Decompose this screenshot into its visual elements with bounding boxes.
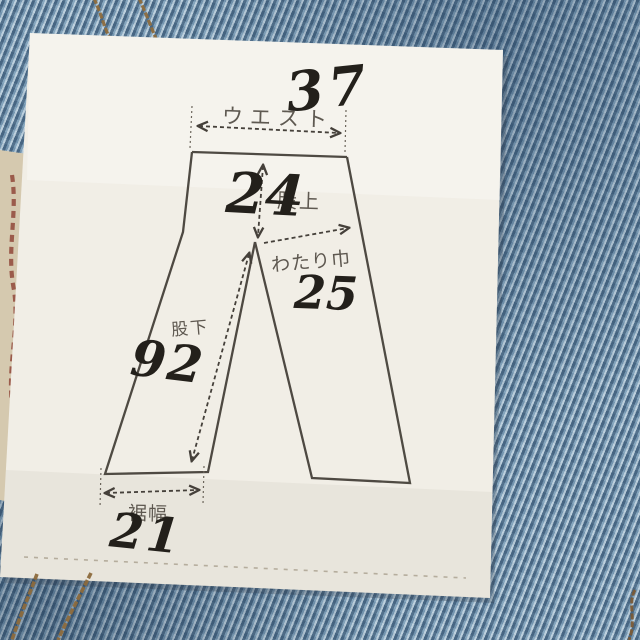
- thigh-value: 25: [293, 265, 359, 321]
- hem-value: 21: [107, 502, 185, 565]
- waist-value: 37: [283, 52, 374, 125]
- rise-value: 24: [224, 160, 305, 230]
- inseam-value: 92: [128, 328, 208, 396]
- photo-scene: ウエスト 股上 わたり巾 股下 裾幅 37 24 25 92 21: [0, 0, 640, 640]
